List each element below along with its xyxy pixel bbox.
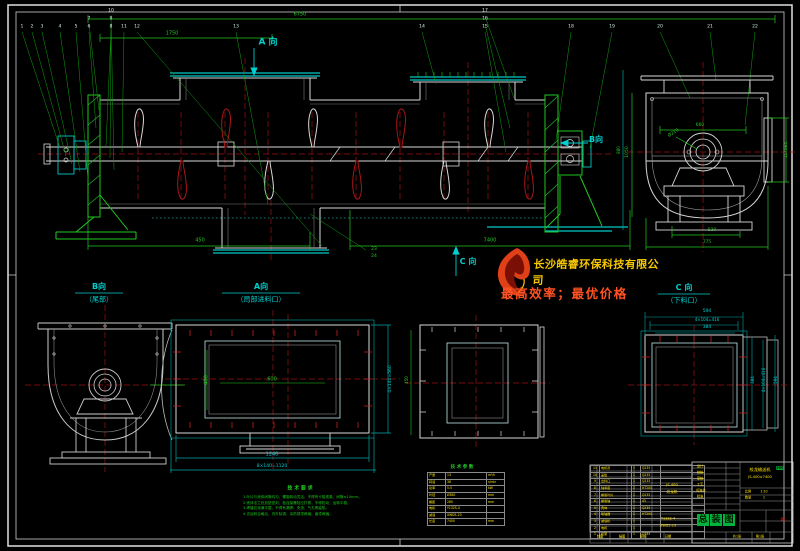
table-cell: 减速 <box>428 512 446 519</box>
table-cell: Q235 <box>641 479 661 486</box>
table-cell: 1 <box>632 492 641 499</box>
table-cell: 电机 <box>428 505 446 512</box>
table-row: 螺距280mm <box>428 499 505 506</box>
table-cell: 1 <box>591 531 600 538</box>
table-cell: 壳体 <box>600 505 632 512</box>
table-cell: 2 <box>591 525 600 532</box>
table-cell: 1 <box>632 525 641 532</box>
table-cell: m³/h <box>487 473 505 480</box>
table-cell: 螺距 <box>428 499 446 506</box>
table-row: 7螺旋叶片1Q235 <box>591 492 705 499</box>
table-cell: Q235 <box>641 505 661 512</box>
main-assembly-view <box>22 15 775 276</box>
table-cell <box>661 479 705 486</box>
table-row: 产量13m³/h <box>428 473 505 480</box>
table-cell: Q235 <box>641 492 661 499</box>
table-cell: 38 <box>446 479 487 486</box>
table-cell: 45 <box>641 498 661 505</box>
table-cell <box>661 518 705 525</box>
table-cell: 机架 <box>600 531 632 538</box>
bolt-marks <box>642 336 747 431</box>
table-cell: 功率 <box>428 486 446 493</box>
table-row: 9出料口1Q235 <box>591 479 705 486</box>
table-cell: 1 <box>632 498 641 505</box>
end-view-top-right <box>628 62 795 252</box>
table-cell: 叶径 <box>428 492 446 499</box>
table-cell <box>661 466 705 473</box>
view-b-bottom <box>25 305 185 472</box>
centerlines <box>38 58 612 262</box>
table-cell: mm <box>487 499 505 506</box>
table-cell: Ø380 <box>446 492 487 499</box>
company-slogan: 最高效率；最优价格 <box>501 283 628 302</box>
table-cell: 1 <box>632 466 641 473</box>
main-dimensions <box>88 15 775 250</box>
table-cell: 280 <box>446 499 487 506</box>
left-end-assembly <box>44 95 136 239</box>
table-cell <box>661 531 705 538</box>
table-row: 5壳体1Q235 <box>591 505 705 512</box>
table-cell: 1 <box>632 479 641 486</box>
table-cell: kW <box>487 486 505 493</box>
bom-table: 11电机罩1Q23510盖板1Q2359出料口1Q2358轴承座2HT2007螺… <box>590 465 705 539</box>
table-cell: r/min <box>487 479 505 486</box>
table-cell: 10 <box>591 472 600 479</box>
table-cell <box>661 472 705 479</box>
table-cell: 9 <box>591 479 600 486</box>
table-row: 11电机罩1Q235 <box>591 466 705 473</box>
table-cell: 1 <box>632 505 641 512</box>
table-row: 电机Y132S-4 <box>428 505 505 512</box>
table-cell: 13 <box>446 473 487 480</box>
table-cell: 1 <box>632 518 641 525</box>
table-cell: 联轴器 <box>600 512 632 519</box>
table-cell: 7400 <box>446 519 487 526</box>
cad-sheet: 长沙皓睿环保科技有限公司 最高效率；最优价格 1.叶片与壳体间隙均匀，螺旋转动灵… <box>0 0 800 551</box>
table-cell <box>487 512 505 519</box>
technical-note-line: 4.试运转合格后，内外除锈，涂防锈漆两遍，面漆两遍。 <box>243 512 362 518</box>
table-cell: 3 <box>591 518 600 525</box>
table-row: 6螺旋轴145 <box>591 498 705 505</box>
table-cell: 产量 <box>428 473 446 480</box>
table-cell: Q235 <box>641 472 661 479</box>
view-mid-square <box>405 315 550 450</box>
table-row: 4联轴器1HT200 <box>591 512 705 519</box>
table-row: 长度7400mm <box>428 519 505 526</box>
technical-notes: 1.叶片与壳体间隙均匀，螺旋转动灵活，不得有卡阻现象，间隙≤10mm。2.壳体法… <box>243 495 362 517</box>
technical-note-line: 1.叶片与壳体间隙均匀，螺旋转动灵活，不得有卡阻现象，间隙≤10mm。 <box>243 495 362 501</box>
table-cell: mm <box>487 492 505 499</box>
table-cell: 5.5 <box>446 486 487 493</box>
table-cell: 轴承座 <box>600 485 632 492</box>
table-cell: 5 <box>591 505 600 512</box>
table-cell: 电机 <box>600 525 632 532</box>
table-cell: 6 <box>591 498 600 505</box>
table-cell: 转速 <box>428 479 446 486</box>
table-cell: 11 <box>591 466 600 473</box>
table-cell: mm <box>487 519 505 526</box>
table-row: 1机架1Q235 <box>591 531 705 538</box>
table-cell: 1 <box>632 472 641 479</box>
table-cell: Q235 <box>641 531 661 538</box>
table-cell: 螺旋叶片 <box>600 492 632 499</box>
parameter-table: 产量13m³/h转速38r/min功率5.5kW叶径Ø380mm螺距280mm电… <box>427 472 505 526</box>
table-cell <box>661 485 705 492</box>
table-cell: 7 <box>591 492 600 499</box>
table-cell <box>661 498 705 505</box>
end-view-dims <box>632 93 789 250</box>
view-a-bottom <box>165 310 400 473</box>
table-cell: XWD5-23 <box>446 512 487 519</box>
table-row: 8轴承座2HT200 <box>591 485 705 492</box>
table-row: 2电机1 <box>591 525 705 532</box>
balloon-leaders <box>22 15 755 250</box>
table-cell: Y132S-4 <box>446 505 487 512</box>
table-cell <box>661 492 705 499</box>
table-row: 叶径Ø380mm <box>428 492 505 499</box>
table-cell <box>661 505 705 512</box>
table-cell: HT200 <box>641 512 661 519</box>
right-end-assembly <box>545 95 602 232</box>
table-row: 减速XWD5-23 <box>428 512 505 519</box>
table-cell <box>641 525 661 532</box>
table-row: 功率5.5kW <box>428 486 505 493</box>
table-cell: Q235 <box>641 466 661 473</box>
table-cell: 盖板 <box>600 472 632 479</box>
table-row: 10盖板1Q235 <box>591 472 705 479</box>
table-cell: 长度 <box>428 519 446 526</box>
table-cell: 8 <box>591 485 600 492</box>
table-cell: HT200 <box>641 485 661 492</box>
table-cell: 电机罩 <box>600 466 632 473</box>
table-cell <box>661 512 705 519</box>
table-cell: 1 <box>632 531 641 538</box>
table-cell: 1 <box>632 512 641 519</box>
table-cell: 出料口 <box>600 479 632 486</box>
table-cell <box>641 518 661 525</box>
table-cell: 螺旋轴 <box>600 498 632 505</box>
table-cell: 减速机 <box>600 518 632 525</box>
table-row: 3减速机1 <box>591 518 705 525</box>
table-row: 转速38r/min <box>428 479 505 486</box>
table-cell <box>487 505 505 512</box>
table-cell: 4 <box>591 512 600 519</box>
table-cell: 2 <box>632 485 641 492</box>
table-cell <box>661 525 705 532</box>
view-c-bottom <box>628 312 790 445</box>
